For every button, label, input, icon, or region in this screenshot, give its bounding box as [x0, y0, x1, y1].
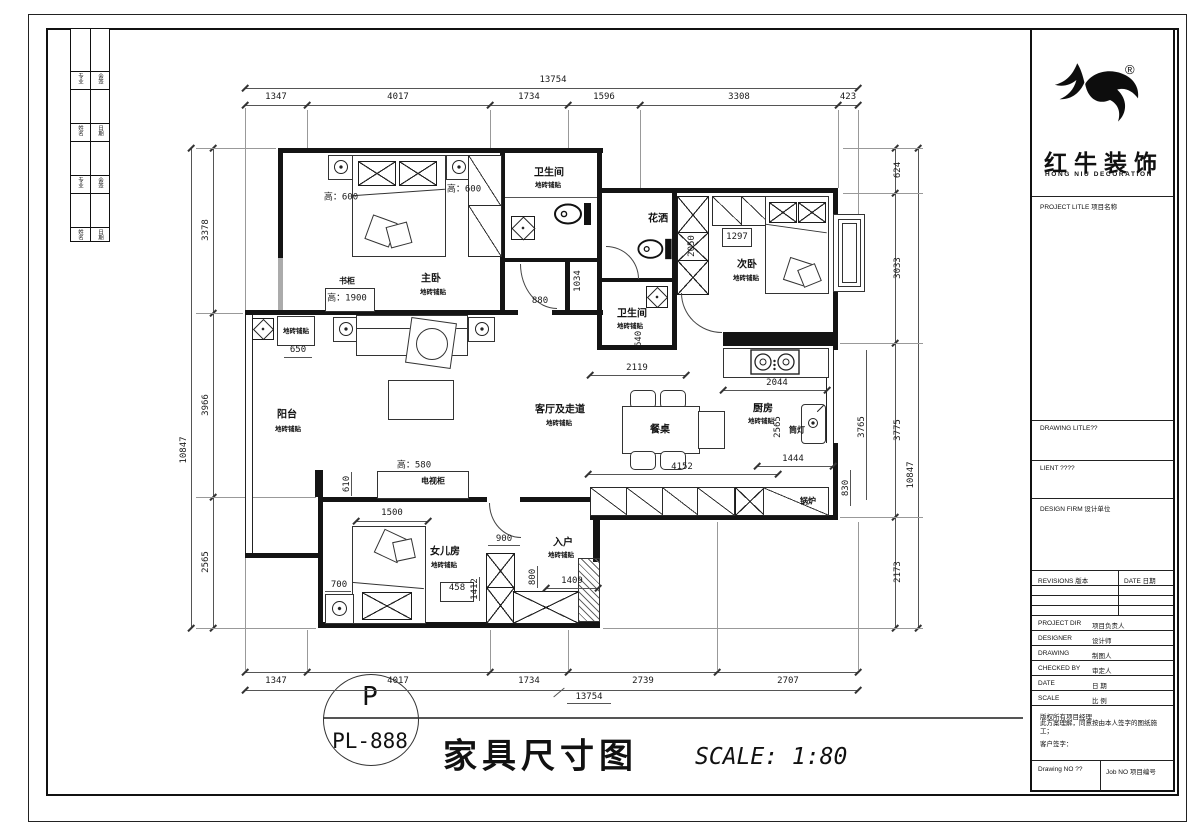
dim-label: 4017: [387, 92, 409, 102]
wall: [565, 262, 570, 310]
hall-cabinet: [590, 487, 628, 516]
wall: [597, 193, 602, 350]
tb-row-cn: 制图人: [1092, 650, 1112, 660]
dim-leader: [567, 703, 611, 704]
extension-line: [196, 313, 243, 314]
tb-row-cn: 日 期: [1092, 680, 1107, 690]
pillow: [769, 202, 797, 223]
dim-line: [245, 690, 858, 691]
dim-label: 1444: [782, 454, 804, 464]
tb-row-cn: 设计师: [1092, 635, 1112, 645]
extension-line: [196, 628, 316, 629]
wall: [315, 470, 323, 497]
room-finish: 地砖铺贴: [748, 415, 774, 425]
dim-label: 2565: [773, 416, 783, 438]
dim-label: 1596: [593, 92, 615, 102]
dining-table-extension: [698, 411, 725, 449]
room-finish: 地砖铺贴: [733, 272, 759, 282]
wardrobe: [468, 205, 502, 257]
pillow: [358, 161, 396, 186]
wall: [833, 443, 838, 520]
dim-line: [245, 672, 858, 673]
washer-finish: 地砖铺贴: [283, 325, 309, 335]
hongniu-bull-logo: [1050, 60, 1154, 140]
room-finish: 地砖铺贴: [275, 423, 301, 433]
dim-label: 1034: [573, 270, 583, 292]
extension-line: [568, 630, 569, 670]
extension-line: [490, 630, 491, 670]
brand-name-en: HONG NIU DECORATION: [1045, 171, 1153, 178]
tb-row-en: CHECKED BY: [1038, 665, 1080, 672]
dim-label: 650: [290, 345, 306, 355]
strip-line: [71, 123, 109, 124]
dim-label: 1409: [561, 576, 583, 586]
height-label: 高：600: [324, 190, 358, 203]
extension-line: [196, 148, 276, 149]
dim-label: 830: [841, 480, 851, 496]
dim-line: [245, 105, 858, 106]
dim-label: 700: [331, 580, 347, 590]
floor-drain-icon: [252, 318, 274, 340]
extension-line: [843, 148, 923, 149]
hall-cabinet: [697, 487, 735, 516]
dim-line: [590, 375, 686, 376]
dim-label: 2173: [893, 561, 903, 583]
lamp-icon: [334, 160, 348, 174]
balcony-window: [245, 315, 253, 553]
closet-cabinet: [677, 260, 709, 295]
tb-bottom-divider: [1100, 760, 1101, 791]
room-finish: 地砖铺贴: [546, 417, 572, 427]
dim-label: 610: [342, 476, 352, 492]
tb-row-en: SCALE: [1038, 695, 1059, 702]
extension-line: [568, 110, 569, 148]
tb-line: [1032, 498, 1173, 499]
strip-line: [71, 193, 109, 194]
tb-line: [1032, 605, 1173, 606]
strip-line: [71, 141, 109, 142]
dim-label: 3378: [201, 219, 211, 241]
strip-cell: 姓名: [76, 229, 84, 240]
throw-pillow: [392, 538, 416, 562]
dim-label: 3765: [857, 416, 867, 438]
tall-cabinet: [735, 487, 765, 516]
dim-line: [918, 148, 919, 628]
room-label-bath2: 卫生间: [617, 305, 647, 320]
dim-label: 13754: [575, 692, 602, 702]
tb-row-en: DESIGNER: [1038, 635, 1072, 642]
boiler-cabinet: [763, 487, 829, 516]
wall: [318, 493, 323, 628]
strip-cell: 日期: [96, 125, 104, 136]
extension-line: [640, 110, 641, 190]
extension-line: [838, 110, 839, 188]
coffee-table: [388, 380, 454, 420]
title-block: ® 红牛装饰 HONG NIU DECORATION PROJECT LITLE…: [1030, 28, 1175, 792]
dining-chair: [630, 451, 656, 470]
dim-label: 1734: [518, 676, 540, 686]
stamp-code: PL-888: [332, 729, 408, 753]
dim-label: 640: [634, 331, 644, 347]
strip-cell: 会签: [96, 73, 104, 84]
dim-label: 3033: [893, 257, 903, 279]
room-label-balcony: 阳台: [277, 406, 297, 421]
lamp-icon: [452, 160, 466, 174]
wardrobe: [486, 553, 515, 589]
tv-height-label: 高：580: [397, 458, 431, 471]
hall-cabinet: [626, 487, 664, 516]
tb-job-no: Job NO 项目编号: [1106, 766, 1156, 776]
tb-client: LIENT ????: [1040, 465, 1075, 472]
strip-cell: 专业: [76, 73, 84, 84]
tb-line: [1032, 585, 1173, 586]
wall: [245, 553, 318, 558]
wall: [723, 332, 838, 346]
sheet-inner-border: [46, 28, 1179, 796]
tv-cabinet-label: 电视柜: [421, 476, 445, 487]
vanity-counter: [505, 197, 597, 198]
dim-line: [757, 466, 833, 467]
dim-line: [488, 545, 520, 546]
dim-line: [245, 88, 858, 89]
extension-line: [840, 517, 923, 518]
wall: [597, 148, 602, 193]
pillow: [399, 161, 437, 186]
tb-disclaimer-2: 此方案理解，同意按由本人签字的图纸施工；: [1040, 720, 1168, 736]
dim-line: [284, 357, 312, 358]
lounge-cushion: [416, 328, 448, 360]
stamp-letter: P: [362, 682, 378, 712]
tb-project-title: PROJECT LITLE 项目名称: [1040, 201, 1117, 211]
light-label: 筒灯: [789, 425, 805, 436]
dim-line: [588, 474, 778, 475]
tb-line: [1032, 615, 1173, 616]
tb-line: [1032, 595, 1173, 596]
room-label-entry: 入户: [553, 534, 573, 549]
dim-label: 1500: [381, 508, 403, 518]
extension-line: [858, 522, 859, 670]
dim-label: 423: [840, 92, 856, 102]
strip-line: [71, 71, 109, 72]
tb-line: [1032, 196, 1173, 197]
closet-cabinet: [677, 196, 709, 234]
strip-line: [71, 227, 109, 228]
room-label-second: 次卧: [737, 256, 757, 271]
dim-line: [546, 588, 598, 589]
sheet-scale: SCALE: 1:80: [695, 744, 847, 770]
room-label-kitchen: 厨房: [753, 400, 773, 415]
tb-drawing-no: Drawing NO ??: [1038, 766, 1082, 773]
tb-line: [1032, 570, 1173, 571]
room-label-daughter: 女儿房: [430, 543, 460, 558]
strip-cell: 专业: [76, 177, 84, 188]
tb-revisions-header: REVISIONS 版本: [1038, 575, 1088, 585]
pillow: [362, 592, 412, 620]
sink-drain: [808, 418, 818, 428]
dim-label: 2565: [201, 551, 211, 573]
tb-line: [1032, 675, 1173, 676]
lamp-icon: [475, 322, 489, 336]
extension-line: [858, 110, 859, 215]
tb-rev-divider: [1118, 570, 1119, 615]
lamp-icon: [332, 601, 347, 616]
toilet-icon: [552, 201, 594, 227]
tb-drawing-title: DRAWING LITLE??: [1040, 425, 1098, 432]
extension-line: [490, 110, 491, 148]
wall: [597, 188, 838, 193]
floor-drain-icon: [511, 216, 535, 240]
bay-window-line: [842, 223, 857, 283]
tb-line: [1032, 660, 1173, 661]
room-finish: 地砖铺贴: [420, 286, 446, 296]
wardrobe: [486, 587, 515, 624]
dim-label: 458: [449, 583, 465, 593]
bookcase-label: 书柜: [339, 276, 355, 287]
room-finish: 地砖铺贴: [535, 179, 561, 189]
dim-label: 900: [496, 534, 512, 544]
dim-label: 3966: [201, 394, 211, 416]
dim-line: [325, 591, 351, 592]
stamp-rule-line: [323, 717, 1023, 719]
dim-label: 1734: [518, 92, 540, 102]
tb-line: [1032, 630, 1173, 631]
tb-row-cn: 审定人: [1092, 665, 1112, 675]
tb-line: [1032, 460, 1173, 461]
hall-cabinet: [662, 487, 699, 516]
pillow: [798, 202, 826, 223]
strip-cell: 会签: [96, 177, 104, 188]
dim-label: 4017: [387, 676, 409, 686]
sheet-title: 家具尺寸图: [443, 729, 638, 778]
tb-line: [1032, 705, 1173, 706]
lamp-icon: [339, 322, 353, 336]
dim-line: [895, 148, 896, 628]
extension-line: [196, 497, 316, 498]
dim-label: 2707: [777, 676, 799, 686]
tb-row-en: DATE: [1038, 680, 1055, 687]
tb-line: [1032, 645, 1173, 646]
bookcase-height: 高：1900: [327, 291, 367, 304]
dim-label: 10847: [179, 436, 189, 463]
dim-label: 13754: [539, 75, 566, 85]
wall: [552, 310, 603, 315]
dim-line: [191, 148, 192, 628]
dim-label: 3775: [893, 419, 903, 441]
dim-label: 1412: [470, 578, 480, 600]
tb-date-header: DATE 日期: [1124, 575, 1156, 585]
boiler-label: 锅炉: [800, 496, 816, 507]
strip-cell: 日期: [96, 229, 104, 240]
wall: [520, 497, 600, 502]
dim-label: 10847: [906, 461, 916, 488]
extension-line: [843, 193, 923, 194]
height-label: 高：600: [447, 182, 481, 195]
room-label-shower: 花洒: [648, 210, 668, 225]
extension-line: [603, 628, 923, 629]
dim-line: [213, 148, 214, 628]
dining-table-label: 餐桌: [650, 421, 670, 436]
tb-line: [1032, 760, 1173, 761]
dim-label: 2044: [766, 378, 788, 388]
tb-row-en: PROJECT DIR: [1038, 620, 1081, 627]
extension-line: [245, 558, 246, 670]
room-finish: 地砖铺贴: [617, 320, 643, 330]
signoff-strip: 专业 会签 姓名 日期 专业 会签 姓名 日期: [70, 28, 110, 242]
room-label-bath1: 卫生间: [534, 164, 564, 179]
tb-signature: 客户签字：: [1040, 738, 1073, 748]
dim-line: [723, 390, 827, 391]
dim-label: 1297: [726, 232, 748, 242]
room-finish: 地砖铺贴: [548, 549, 574, 559]
extension-line: [307, 110, 308, 148]
dim-label: 624: [893, 162, 903, 178]
drawing-sheet: 专业 会签 姓名 日期 专业 会签 姓名 日期 ® 红牛装饰 HONG NIU …: [0, 0, 1200, 834]
floor-drain-icon: [646, 286, 668, 308]
extension-line: [245, 108, 246, 310]
tb-row-en: DRAWING: [1038, 650, 1069, 657]
dim-label: 1347: [265, 676, 287, 686]
toilet-icon: [636, 237, 674, 261]
wall-window-pier: [278, 258, 283, 310]
registered-mark-icon: ®: [1125, 62, 1135, 77]
room-label-master: 主卧: [421, 270, 441, 285]
extension-line: [307, 630, 308, 670]
wardrobe: [712, 196, 743, 226]
tb-line: [1032, 690, 1173, 691]
strip-line: [71, 89, 109, 90]
shoe-cabinet: [513, 591, 579, 624]
extension-line: [840, 343, 923, 344]
strip-divider: [90, 29, 91, 241]
tb-design-firm: DESIGN FIRM 设计单位: [1040, 503, 1110, 513]
tb-line: [1032, 420, 1173, 421]
wall: [505, 258, 600, 262]
dim-label: 2119: [626, 363, 648, 373]
dim-label: 800: [528, 569, 538, 585]
dim-label: 2050: [687, 235, 697, 257]
room-label-living: 客厅及走道: [535, 401, 585, 416]
dim-label: 2739: [632, 676, 654, 686]
dim-label: 1347: [265, 92, 287, 102]
wall: [593, 520, 600, 562]
tb-row-cn: 比 例: [1092, 695, 1107, 705]
tb-row-cn: 项目负责人: [1092, 620, 1125, 630]
wall: [278, 148, 283, 258]
dim-line: [356, 521, 428, 522]
strip-cell: 姓名: [76, 125, 84, 136]
wall: [278, 148, 603, 153]
dim-label: 880: [532, 296, 548, 306]
room-finish: 地砖铺贴: [431, 559, 457, 569]
stove-icon: [750, 349, 800, 375]
dim-label: 3308: [728, 92, 750, 102]
strip-line: [71, 175, 109, 176]
extension-line: [717, 522, 718, 670]
dim-label: 4152: [671, 462, 693, 472]
